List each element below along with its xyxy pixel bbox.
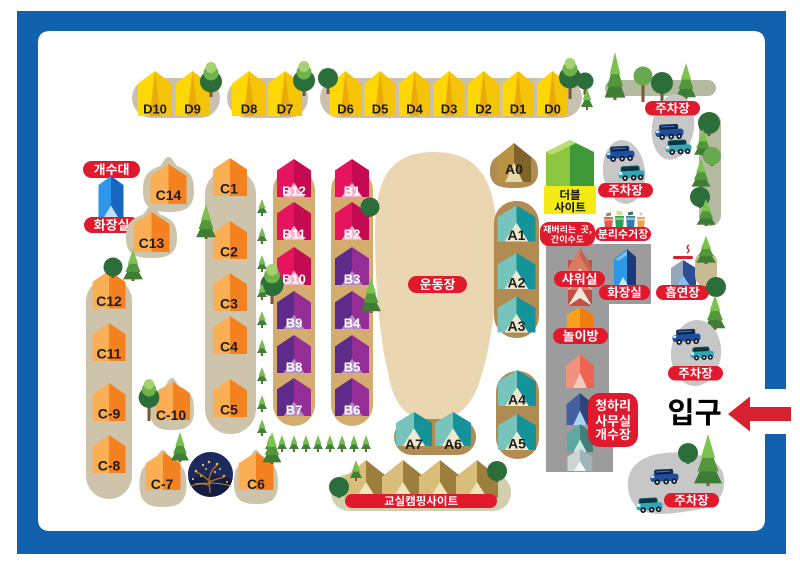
svg-text:B8: B8 — [286, 360, 303, 375]
svg-text:B7: B7 — [286, 403, 303, 418]
svg-text:A1: A1 — [508, 227, 526, 243]
svg-text:B11: B11 — [282, 227, 305, 242]
svg-text:B2: B2 — [344, 227, 361, 242]
svg-text:A7: A7 — [405, 436, 423, 452]
svg-text:B10: B10 — [282, 272, 306, 287]
svg-text:B4: B4 — [344, 316, 361, 331]
svg-text:D7: D7 — [277, 102, 294, 117]
svg-text:D3: D3 — [441, 102, 458, 117]
svg-text:D0: D0 — [544, 102, 561, 117]
svg-text:B9: B9 — [286, 316, 303, 331]
svg-text:B1: B1 — [344, 184, 361, 199]
svg-text:D10: D10 — [143, 102, 167, 117]
svg-text:D2: D2 — [475, 102, 492, 117]
svg-text:B6: B6 — [344, 403, 361, 418]
svg-text:C13: C13 — [139, 235, 165, 251]
svg-text:D4: D4 — [406, 102, 423, 117]
svg-text:B5: B5 — [344, 360, 361, 375]
svg-text:B12: B12 — [282, 184, 306, 199]
svg-text:B3: B3 — [344, 272, 361, 287]
svg-text:C3: C3 — [220, 296, 238, 312]
svg-text:A3: A3 — [508, 318, 526, 334]
svg-text:C-9: C-9 — [98, 406, 121, 422]
svg-text:C-7: C-7 — [151, 476, 174, 492]
svg-text:C-10: C-10 — [156, 407, 187, 423]
svg-text:D5: D5 — [372, 102, 389, 117]
svg-text:C12: C12 — [96, 293, 122, 309]
svg-text:C5: C5 — [220, 402, 238, 418]
svg-text:A6: A6 — [444, 436, 462, 452]
svg-text:D8: D8 — [241, 102, 258, 117]
svg-text:C2: C2 — [220, 244, 238, 260]
svg-text:C11: C11 — [97, 346, 122, 362]
svg-text:A0: A0 — [505, 161, 523, 177]
svg-text:C4: C4 — [220, 339, 238, 355]
svg-text:C6: C6 — [247, 476, 265, 492]
svg-text:A5: A5 — [508, 436, 526, 452]
svg-text:C1: C1 — [220, 181, 238, 197]
svg-text:A4: A4 — [508, 392, 526, 408]
svg-text:C14: C14 — [156, 187, 182, 203]
svg-text:A2: A2 — [508, 275, 526, 291]
svg-text:D1: D1 — [510, 102, 527, 117]
svg-text:C-8: C-8 — [98, 458, 121, 474]
svg-text:D9: D9 — [184, 102, 201, 117]
svg-text:D6: D6 — [337, 102, 354, 117]
